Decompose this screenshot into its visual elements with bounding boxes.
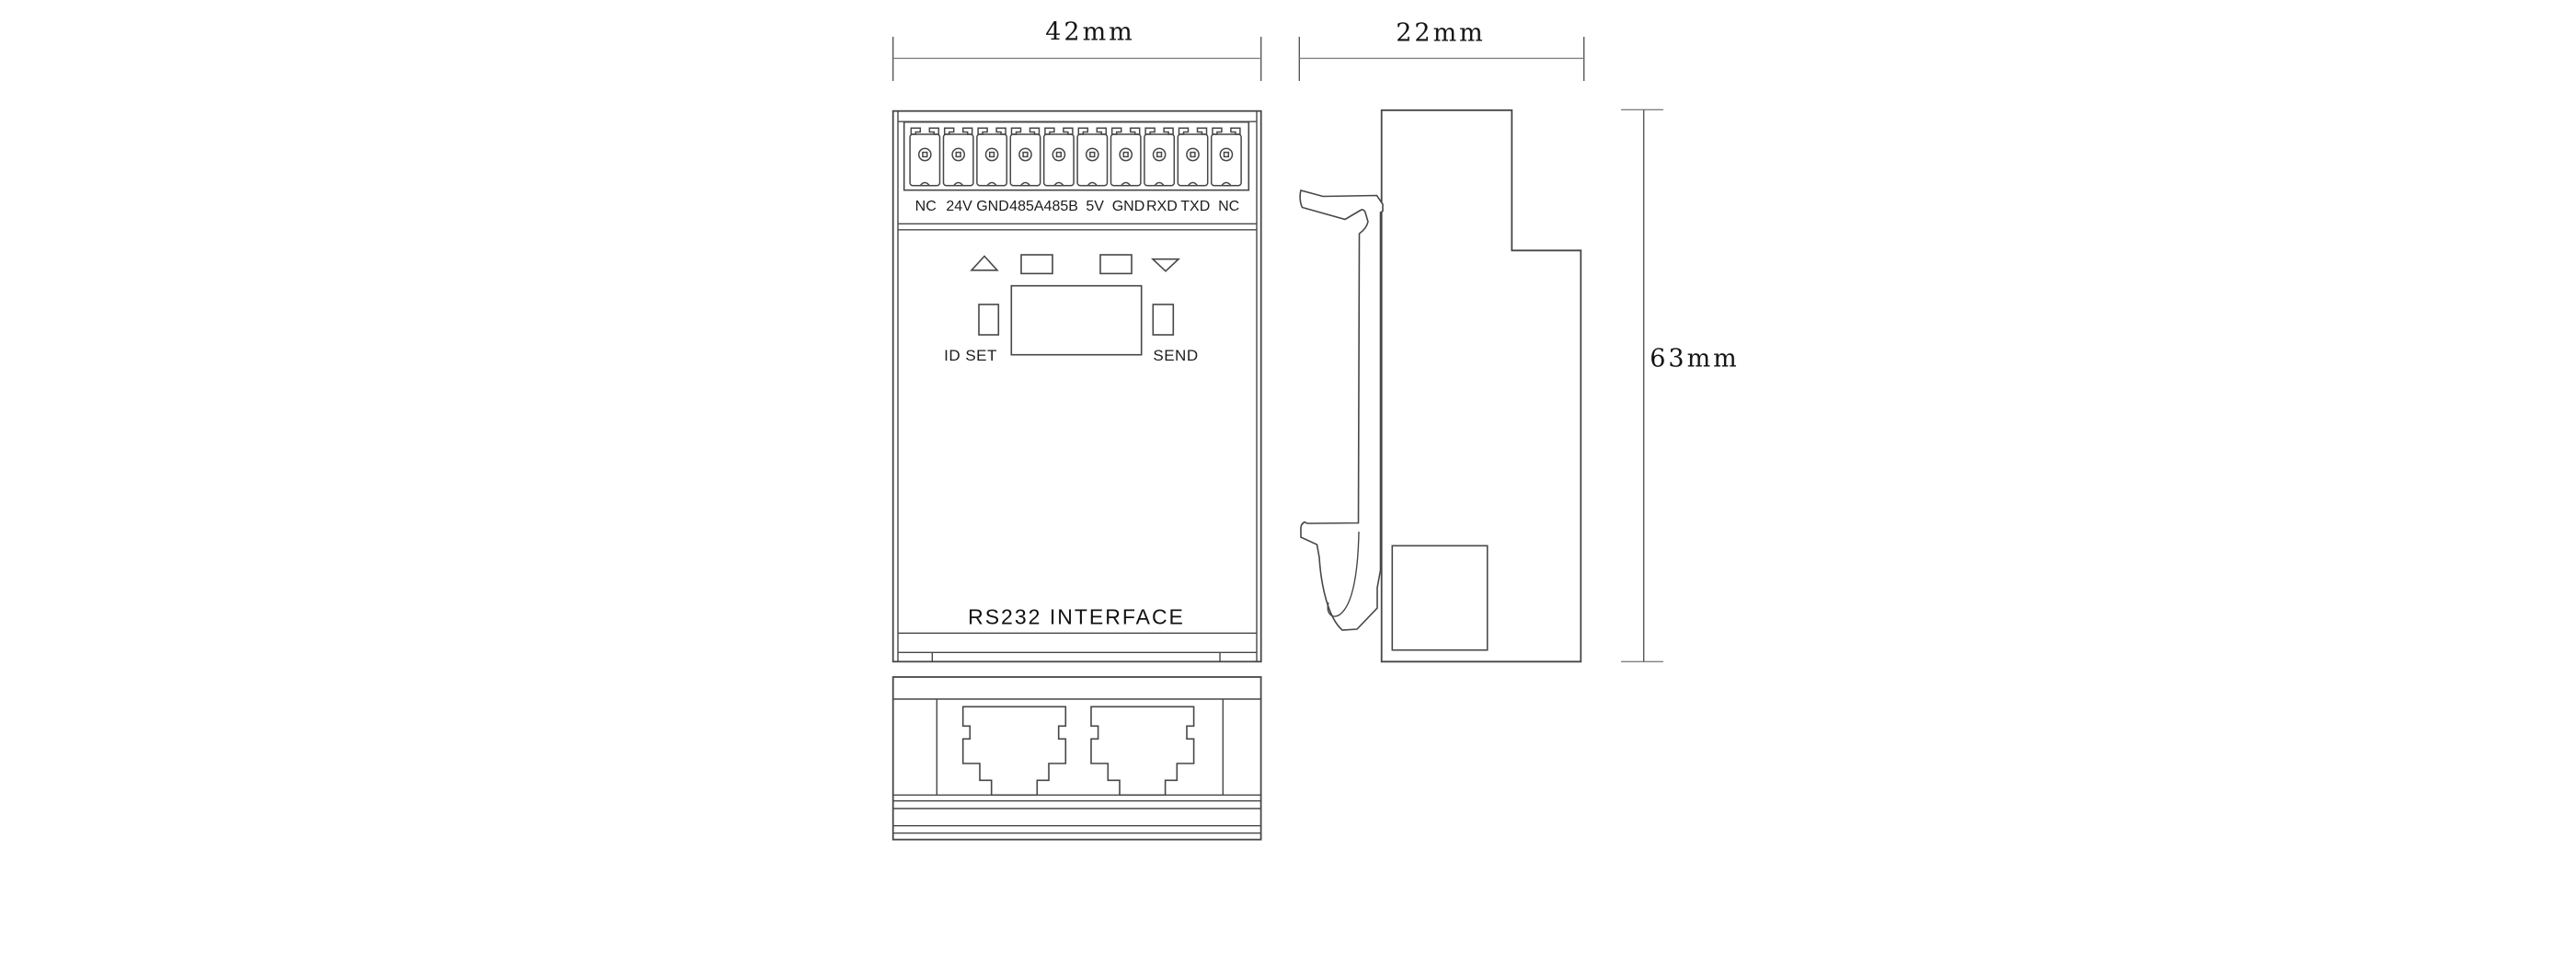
id-set-led bbox=[979, 304, 998, 335]
up-arrow-icon bbox=[972, 257, 997, 270]
dimension-label-22mm: 22mm bbox=[1396, 19, 1486, 48]
terminal-clamp bbox=[977, 128, 1006, 186]
side-body-outline bbox=[1382, 110, 1581, 662]
terminal-label-5v: 5V bbox=[1078, 199, 1111, 215]
terminal-label-txd: TXD bbox=[1179, 199, 1212, 215]
terminal-label-485a: 485A bbox=[1009, 199, 1043, 215]
dimension-label-63mm: 63mm bbox=[1650, 345, 1740, 373]
control-panel bbox=[972, 255, 1179, 355]
rj45-jack-left bbox=[963, 706, 1066, 795]
terminal-clamp bbox=[1212, 128, 1241, 186]
terminal-clamp bbox=[1111, 128, 1141, 186]
dimension-lines bbox=[893, 37, 1663, 661]
terminal-label-485b: 485B bbox=[1044, 199, 1078, 215]
rj45-jack-right bbox=[1091, 706, 1194, 795]
send-label: SEND bbox=[1153, 347, 1198, 365]
dimension-label-42mm: 42mm bbox=[1045, 18, 1135, 47]
terminal-clamp bbox=[1044, 128, 1074, 186]
terminal-label-nc-1: NC bbox=[909, 199, 942, 215]
din-rail-clip bbox=[1300, 190, 1383, 630]
technical-drawing: 42mm 22mm 63mm NC 24V GND 485A 485B 5V G… bbox=[0, 0, 2576, 964]
terminal-clamp bbox=[910, 128, 939, 186]
button-right bbox=[1100, 255, 1132, 273]
front-foot-dividers bbox=[932, 652, 1220, 661]
terminal-clamp bbox=[944, 128, 973, 186]
terminal-label-gnd-2: GND bbox=[1111, 199, 1144, 215]
product-name-label: RS232 INTERFACE bbox=[968, 605, 1185, 630]
display-window bbox=[1011, 286, 1141, 355]
terminal-clamp bbox=[1144, 128, 1174, 186]
terminal-label-gnd-1: GND bbox=[976, 199, 1009, 215]
id-set-label: ID SET bbox=[944, 347, 997, 365]
bottom-groove-lines bbox=[893, 795, 1261, 832]
drawing-linework bbox=[0, 0, 2576, 964]
terminal-clamp bbox=[1077, 128, 1107, 186]
side-view bbox=[1300, 110, 1581, 662]
bottom-outer-frame bbox=[893, 677, 1261, 840]
terminal-label-nc-2: NC bbox=[1212, 199, 1245, 215]
terminal-clamp bbox=[1178, 128, 1207, 186]
send-led bbox=[1153, 304, 1173, 335]
button-left bbox=[1021, 255, 1052, 273]
terminal-label-rxd: RXD bbox=[1145, 199, 1179, 215]
bottom-view bbox=[893, 677, 1261, 840]
down-arrow-icon bbox=[1153, 259, 1179, 271]
terminal-block bbox=[904, 122, 1249, 190]
dimension-63mm-lines bbox=[1621, 109, 1663, 661]
terminal-clamp bbox=[1010, 128, 1040, 186]
front-bottom-seams bbox=[898, 633, 1257, 652]
terminal-label-24v: 24V bbox=[942, 199, 975, 215]
terminal-strip-seam bbox=[898, 224, 1257, 230]
terminal-labels-row: NC 24V GND 485A 485B 5V GND RXD TXD NC bbox=[909, 190, 1244, 224]
side-inner-box bbox=[1392, 545, 1487, 649]
